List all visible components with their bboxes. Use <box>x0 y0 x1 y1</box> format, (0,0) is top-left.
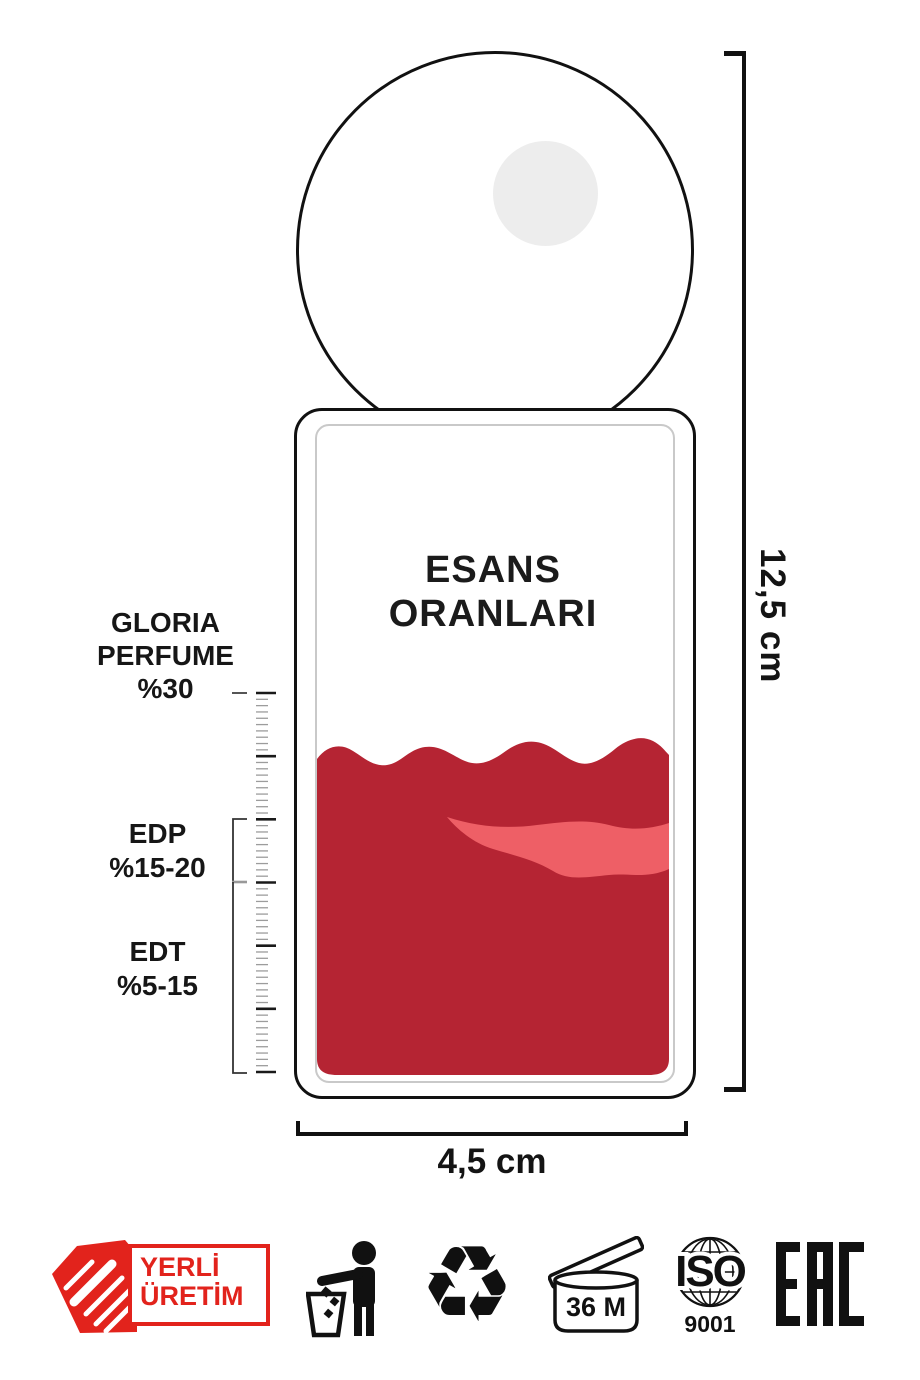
liquid-dark-wave <box>317 738 669 1075</box>
liquid-fill <box>317 729 669 1081</box>
perfume-line: PERFUME <box>58 639 273 672</box>
gloria-line: GLORIA <box>58 606 273 639</box>
width-dimension-line <box>296 1132 688 1136</box>
iso-text: ISO <box>675 1247 746 1296</box>
recycle-icon: ♻ <box>412 1226 522 1346</box>
width-dimension-label: 4,5 cm <box>296 1142 688 1182</box>
eac-mark <box>776 1242 864 1326</box>
measure-ruler <box>226 686 280 1081</box>
bracket-edp <box>233 819 247 882</box>
height-dimension-label: 12,5 cm <box>752 548 792 683</box>
bottle-title: ESANS ORANLARI <box>315 548 671 636</box>
width-dim-left-cap <box>296 1121 300 1136</box>
title-line-2: ORANLARI <box>315 592 671 636</box>
tidyman-icon <box>306 1238 394 1338</box>
bracket-edt <box>233 882 247 1073</box>
cap-highlight <box>493 141 598 246</box>
height-dim-bottom-cap <box>724 1087 746 1092</box>
title-line-1: ESANS <box>315 548 671 592</box>
width-dim-right-cap <box>684 1121 688 1136</box>
height-dim-top-cap <box>724 51 746 56</box>
yerli-uretim-badge: YERLİ ÜRETİM <box>128 1244 270 1326</box>
ruler-ticks <box>256 693 276 1072</box>
height-dimension-line <box>742 51 746 1092</box>
pao-36m-icon: 36 M <box>548 1236 644 1336</box>
iso-number-text: 9001 <box>684 1311 735 1336</box>
infographic-canvas: ESANS ORANLARI GLORIA PERFUME %30 EDP %1… <box>0 0 920 1380</box>
yerli-text: YERLİ <box>140 1253 266 1282</box>
uretim-text: ÜRETİM <box>140 1282 266 1311</box>
pao-duration-text: 36 M <box>566 1292 626 1322</box>
bottle-label-area <box>315 424 675 1083</box>
iso-9001-icon: ISO 9001 <box>660 1236 760 1336</box>
bottle-cap <box>296 51 694 449</box>
